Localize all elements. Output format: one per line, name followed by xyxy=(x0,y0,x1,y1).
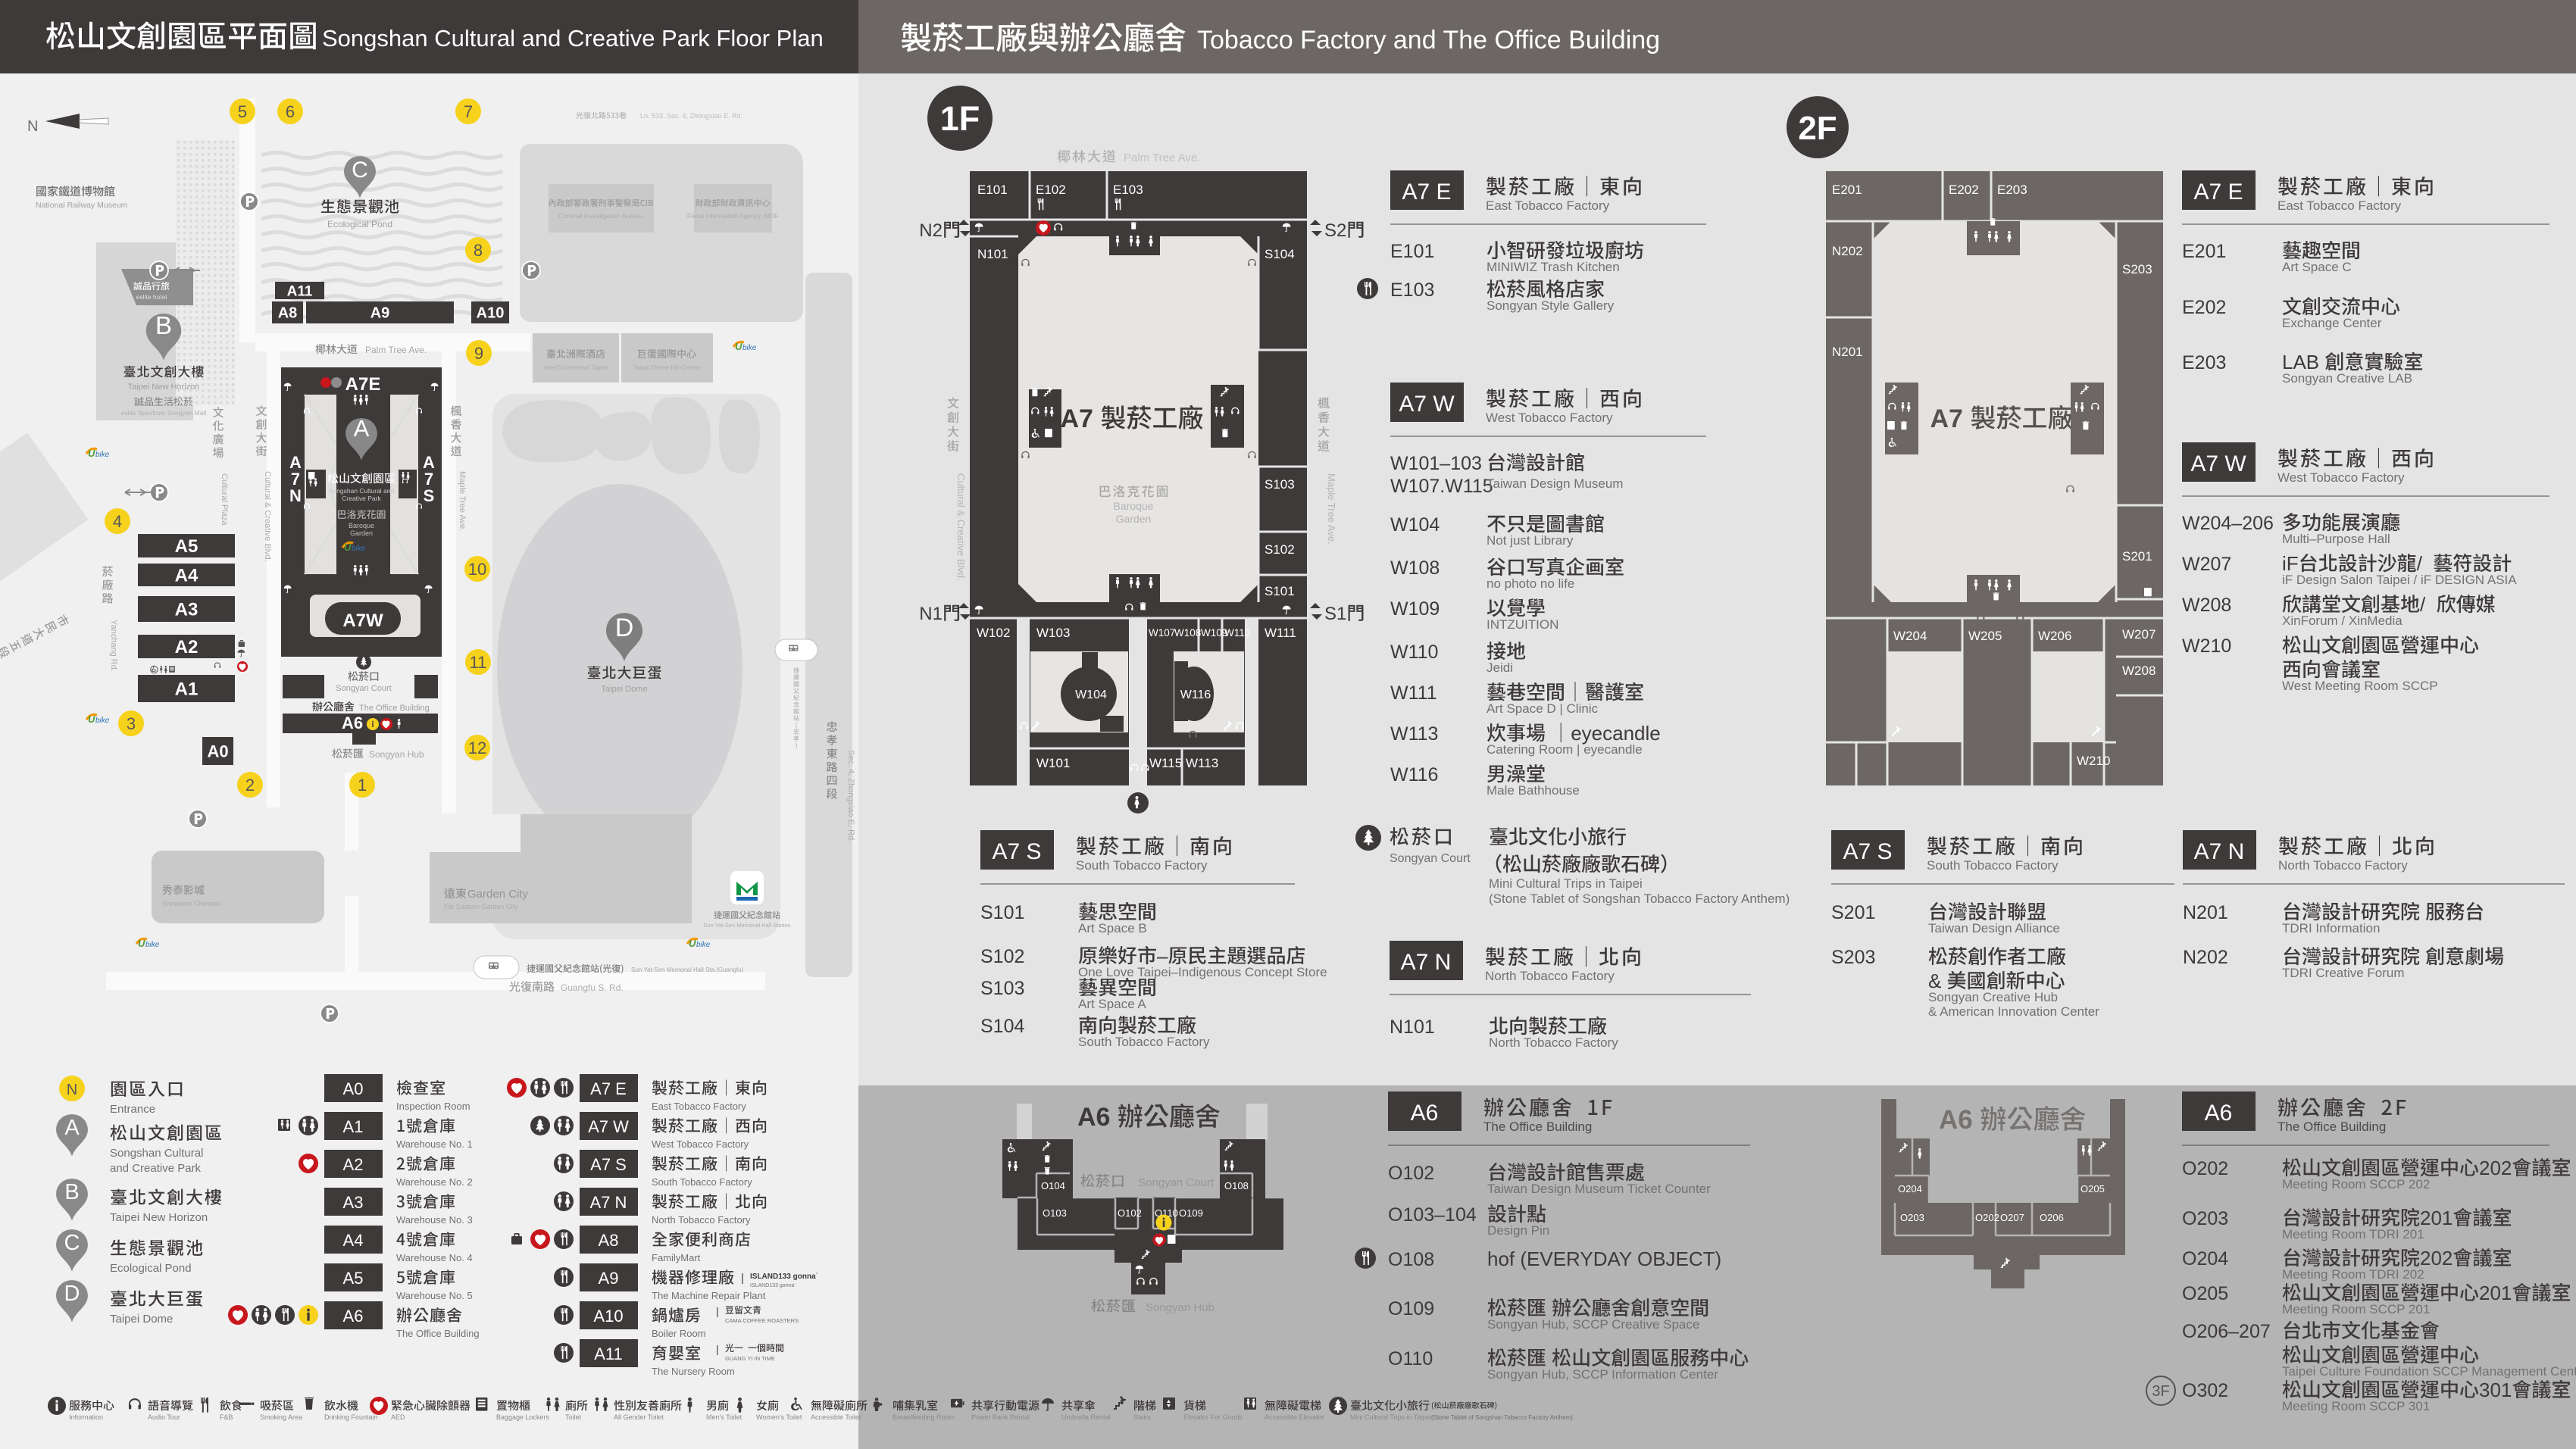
svg-text:A10: A10 xyxy=(477,305,505,322)
svg-text:N1: N1 xyxy=(919,604,943,624)
svg-text:Sec. 4, Zhongxiao E. Rd.: Sec. 4, Zhongxiao E. Rd. xyxy=(846,750,855,842)
svg-text:XinForum / XinMedia: XinForum / XinMedia xyxy=(2282,614,2402,628)
svg-text:6: 6 xyxy=(286,102,295,121)
svg-text:Fiscal Information Agency, MOF: Fiscal Information Agency, MOF xyxy=(687,212,778,220)
svg-text:Ecological Pond: Ecological Pond xyxy=(110,1262,192,1275)
svg-text:Accessible Toilet: Accessible Toilet xyxy=(811,1413,861,1421)
svg-text:A7W: A7W xyxy=(342,611,383,631)
svg-text:CAMA COFFEE ROASTERS: CAMA COFFEE ROASTERS xyxy=(725,1317,799,1324)
svg-text:iF: iF xyxy=(2282,552,2299,575)
svg-text:Exchange Center: Exchange Center xyxy=(2282,316,2382,330)
svg-text:W104: W104 xyxy=(1390,514,1440,536)
svg-text:E202: E202 xyxy=(1949,183,1979,197)
svg-text:W110: W110 xyxy=(1390,642,1438,663)
svg-text:A7: A7 xyxy=(1061,404,1093,433)
svg-text:Taiwan Design Alliance: Taiwan Design Alliance xyxy=(1928,921,2060,935)
svg-text:bike: bike xyxy=(352,545,366,553)
svg-text:All Gender Toilet: All Gender Toilet xyxy=(614,1413,664,1421)
svg-text:10: 10 xyxy=(468,560,486,579)
svg-text:S101: S101 xyxy=(980,902,1024,923)
svg-text:A7 W: A7 W xyxy=(588,1117,629,1136)
svg-text:N202: N202 xyxy=(2183,947,2228,968)
svg-text:1: 1 xyxy=(358,776,367,795)
svg-text:Songshan Cultural and: Songshan Cultural and xyxy=(329,487,395,495)
svg-text:Criminal Investigation Bureau: Criminal Investigation Bureau xyxy=(558,212,642,220)
svg-text:Art Space B: Art Space B xyxy=(1078,921,1147,935)
svg-text:South Tobacco Factory: South Tobacco Factory xyxy=(652,1176,752,1188)
svg-text:East Tobacco Factory: East Tobacco Factory xyxy=(2277,198,2402,213)
svg-text:Cultural Plaza: Cultural Plaza xyxy=(220,473,229,526)
svg-text:S1: S1 xyxy=(1324,604,1346,624)
svg-text:S201: S201 xyxy=(2122,549,2152,564)
svg-text:O108: O108 xyxy=(1388,1249,1434,1270)
svg-text:bike: bike xyxy=(145,941,160,949)
svg-text:A: A xyxy=(354,415,370,442)
svg-text:N: N xyxy=(27,118,38,135)
svg-text:A7 N: A7 N xyxy=(590,1193,627,1212)
svg-text:Taiwan Design Museum: Taiwan Design Museum xyxy=(1487,476,1623,491)
svg-text:Baroque: Baroque xyxy=(1114,500,1154,512)
svg-text:Taipei New Horizon: Taipei New Horizon xyxy=(110,1211,208,1224)
svg-text:S101: S101 xyxy=(1265,584,1295,598)
svg-text:Songyan Hub, SCCP Creative Spa: Songyan Hub, SCCP Creative Space xyxy=(1487,1317,1699,1332)
svg-text:W101: W101 xyxy=(1036,756,1070,770)
svg-text:Songyan Hub: Songyan Hub xyxy=(1146,1301,1215,1314)
svg-text:N201: N201 xyxy=(1832,345,1863,359)
svg-text:Taipei Dome Intl Center: Taipei Dome Intl Center xyxy=(633,364,701,371)
svg-text:S2: S2 xyxy=(1324,220,1346,241)
svg-text:N202: N202 xyxy=(1832,244,1863,258)
svg-text:O205: O205 xyxy=(2182,1283,2228,1304)
svg-text:Umbrella Rental: Umbrella Rental xyxy=(1061,1413,1111,1421)
svg-text:South Tobacco Factory: South Tobacco Factory xyxy=(1076,858,1208,873)
svg-text:Taipei New Horizon: Taipei New Horizon xyxy=(128,383,200,392)
svg-text:eslite hotel: eslite hotel xyxy=(136,293,167,301)
svg-text:Male Bathhouse: Male Bathhouse xyxy=(1487,783,1580,798)
svg-text:Inspection Room: Inspection Room xyxy=(396,1101,470,1112)
svg-text:Not just Library: Not just Library xyxy=(1487,533,1574,548)
svg-text:O102: O102 xyxy=(1118,1207,1142,1219)
svg-text:N: N xyxy=(67,1082,77,1098)
svg-text:Ecological Pond: Ecological Pond xyxy=(327,219,392,230)
svg-text:MINIWIZ Trash Kitchen: MINIWIZ Trash Kitchen xyxy=(1487,260,1620,274)
svg-text:|: | xyxy=(716,1305,719,1317)
svg-text:B: B xyxy=(155,311,172,339)
svg-text:F&B: F&B xyxy=(220,1413,233,1421)
svg-text:GUANG YI IN TIME: GUANG YI IN TIME xyxy=(725,1355,775,1362)
svg-text:Baggage Lockers: Baggage Lockers xyxy=(496,1413,550,1421)
svg-text:bike: bike xyxy=(696,941,711,949)
svg-text:A1: A1 xyxy=(175,679,199,700)
svg-text:W206: W206 xyxy=(2038,629,2071,643)
svg-text:–: – xyxy=(1157,945,1168,967)
svg-text:South Tobacco Factory: South Tobacco Factory xyxy=(1927,858,2059,873)
svg-text:The Office Building: The Office Building xyxy=(2277,1120,2386,1134)
svg-text:East Tobacco Factory: East Tobacco Factory xyxy=(652,1101,746,1112)
svg-text:bike: bike xyxy=(742,344,757,352)
svg-text:West Meeting Room SCCP: West Meeting Room SCCP xyxy=(2282,679,2438,693)
svg-text:A9: A9 xyxy=(599,1269,619,1288)
svg-text:N2: N2 xyxy=(919,220,943,241)
svg-text:Jeidi: Jeidi xyxy=(1487,660,1513,675)
svg-text:D: D xyxy=(64,1282,80,1306)
svg-text:W102: W102 xyxy=(977,626,1010,640)
svg-text:O202: O202 xyxy=(2182,1158,2228,1179)
svg-text:Drinking Fountain: Drinking Fountain xyxy=(324,1413,378,1421)
svg-text:A11: A11 xyxy=(287,283,313,299)
svg-text:O103: O103 xyxy=(1043,1207,1067,1219)
svg-text:hof (EVERYDAY OBJECT): hof (EVERYDAY OBJECT) xyxy=(1487,1248,1721,1270)
svg-text:A4: A4 xyxy=(175,566,199,586)
svg-text:ISLAND133 gonna˙: ISLAND133 gonna˙ xyxy=(750,1273,818,1281)
svg-text:A6: A6 xyxy=(342,714,363,732)
svg-text:N101: N101 xyxy=(1390,1016,1435,1038)
svg-text:INTZUITION: INTZUITION xyxy=(1487,617,1558,632)
svg-text:W208: W208 xyxy=(2182,595,2231,616)
svg-text:Songyan Court: Songyan Court xyxy=(1390,852,1471,865)
svg-text:Songshan Cultural and Creative: Songshan Cultural and Creative Park Floo… xyxy=(322,25,824,52)
svg-text:The Office Building: The Office Building xyxy=(359,704,430,713)
svg-text:W116: W116 xyxy=(1390,764,1438,785)
svg-text:S201: S201 xyxy=(1831,902,1875,923)
svg-text:O302: O302 xyxy=(2182,1380,2228,1401)
svg-text:/: / xyxy=(2417,552,2423,575)
svg-text:W116: W116 xyxy=(1180,689,1211,701)
svg-text:Ln. 533, Sec. 4, Zhongxiao E.: Ln. 533, Sec. 4, Zhongxiao E. Rd. xyxy=(640,112,742,120)
svg-text:Audio Tour: Audio Tour xyxy=(148,1413,180,1421)
svg-text:S: S xyxy=(424,486,435,505)
svg-text:A0: A0 xyxy=(207,742,228,760)
svg-text:W108: W108 xyxy=(1390,557,1440,579)
svg-text:Songyan Hub: Songyan Hub xyxy=(369,749,424,760)
svg-text:Art Space C: Art Space C xyxy=(2282,260,2352,274)
svg-text:Songyan Hub, SCCP Information: Songyan Hub, SCCP Information Center xyxy=(1487,1367,1718,1382)
svg-text:Cultural & Creative Blvd.: Cultural & Creative Blvd. xyxy=(955,473,967,581)
svg-text:Boiler Room: Boiler Room xyxy=(652,1328,706,1339)
svg-text:North Tobacco Factory: North Tobacco Factory xyxy=(1485,969,1615,983)
svg-text:E103: E103 xyxy=(1113,183,1143,197)
svg-text:A7 W: A7 W xyxy=(1399,392,1455,417)
svg-text:A9: A9 xyxy=(370,305,390,322)
svg-text:8: 8 xyxy=(474,241,483,260)
svg-text:Far Eastern Garden City: Far Eastern Garden City xyxy=(444,903,518,910)
svg-text:A6: A6 xyxy=(343,1307,364,1326)
svg-text:S104: S104 xyxy=(980,1016,1024,1037)
svg-text:U: U xyxy=(138,938,145,949)
svg-text:W207: W207 xyxy=(2122,627,2156,642)
svg-text:Entrance: Entrance xyxy=(110,1103,155,1116)
svg-text:Power Bank Rental: Power Bank Rental xyxy=(971,1413,1030,1421)
svg-text:3F: 3F xyxy=(2152,1383,2169,1400)
svg-text:One Love Taipei–Indigenous Con: One Love Taipei–Indigenous Concept Store xyxy=(1078,965,1327,979)
svg-text:O202: O202 xyxy=(1975,1212,1999,1223)
svg-text:E201: E201 xyxy=(2182,241,2226,262)
svg-text:2F: 2F xyxy=(1798,110,1837,147)
svg-text:TDRI Information: TDRI Information xyxy=(2282,921,2380,935)
svg-text:W107: W107 xyxy=(1149,627,1175,639)
svg-text:Mini Cultural Trips in Taipei: Mini Cultural Trips in Taipei xyxy=(1489,876,1643,891)
svg-text:Showtime Cinemas: Showtime Cinemas xyxy=(162,900,221,907)
svg-text:Garden: Garden xyxy=(1116,513,1152,525)
svg-text:InterContinental Taipei: InterContinental Taipei xyxy=(544,364,608,371)
svg-text:9: 9 xyxy=(474,344,483,363)
svg-text:The Office Building: The Office Building xyxy=(1483,1120,1592,1134)
svg-text:Toilet: Toilet xyxy=(565,1413,582,1421)
svg-text:A7 S: A7 S xyxy=(1843,839,1892,864)
svg-text:W210: W210 xyxy=(2077,754,2110,768)
svg-text:W204: W204 xyxy=(1893,629,1927,643)
svg-text:A0: A0 xyxy=(343,1079,364,1098)
svg-text:1F: 1F xyxy=(940,99,980,138)
svg-text:O109: O109 xyxy=(1388,1298,1434,1319)
svg-text:N201: N201 xyxy=(2183,902,2228,923)
svg-text:A7 S: A7 S xyxy=(992,839,1041,864)
svg-text:Art Space D | Clinic: Art Space D | Clinic xyxy=(1487,701,1599,716)
svg-text:Garden City: Garden City xyxy=(467,888,529,901)
svg-text:Taipei Dome: Taipei Dome xyxy=(601,685,647,694)
svg-text:(Stone Tablet of Songshan Toba: (Stone Tablet of Songshan Tobacco Factor… xyxy=(1489,892,1790,906)
svg-text:Songyan Style Gallery: Songyan Style Gallery xyxy=(1487,298,1615,313)
svg-text:Taipei Culture Foundation SCCP: Taipei Culture Foundation SCCP Managemen… xyxy=(2282,1364,2576,1379)
svg-text:Garden: Garden xyxy=(350,529,373,537)
svg-text:Songyan Court: Songyan Court xyxy=(1138,1176,1215,1189)
svg-text:LAB: LAB xyxy=(2282,351,2319,373)
svg-text:Warehouse No. 1: Warehouse No. 1 xyxy=(396,1138,473,1150)
svg-text:B: B xyxy=(64,1180,79,1204)
svg-text:201: 201 xyxy=(2479,1282,2512,1304)
svg-text:North Tobacco Factory: North Tobacco Factory xyxy=(652,1214,751,1226)
svg-text:Baroque: Baroque xyxy=(349,522,374,529)
svg-text:E202: E202 xyxy=(2182,297,2226,318)
svg-text:Guangfu S. Rd.: Guangfu S. Rd. xyxy=(561,982,624,993)
svg-text:O102: O102 xyxy=(1388,1163,1434,1184)
svg-text:O205: O205 xyxy=(2080,1183,2105,1194)
svg-text:A7E: A7E xyxy=(345,374,381,395)
svg-text:C: C xyxy=(352,158,368,183)
svg-text:East Tobacco Factory: East Tobacco Factory xyxy=(1486,198,1610,213)
svg-text:Accessible Elevator: Accessible Elevator xyxy=(1265,1413,1324,1421)
svg-text:U: U xyxy=(689,938,696,949)
svg-text:A5: A5 xyxy=(343,1269,364,1288)
svg-text:TDRI Creative Forum: TDRI Creative Forum xyxy=(2282,966,2405,980)
svg-text:A6: A6 xyxy=(1077,1103,1110,1132)
svg-text:Warehouse No. 3: Warehouse No. 3 xyxy=(396,1214,473,1226)
svg-text:E102: E102 xyxy=(1036,183,1066,197)
svg-text:D: D xyxy=(615,614,634,642)
svg-text:W115: W115 xyxy=(1149,756,1182,770)
svg-text:Meeting Room SCCP 202: Meeting Room SCCP 202 xyxy=(2282,1177,2430,1191)
svg-text:U: U xyxy=(344,542,352,553)
svg-text:Yanchang Rd.: Yanchang Rd. xyxy=(109,620,118,672)
svg-text:A4: A4 xyxy=(343,1231,364,1250)
svg-text:A7 W: A7 W xyxy=(2190,451,2246,476)
svg-text:S103: S103 xyxy=(1265,477,1295,492)
svg-text:W111: W111 xyxy=(1390,682,1437,704)
svg-text:/: / xyxy=(2420,593,2426,616)
svg-text:Maple Tree Ave.: Maple Tree Ave. xyxy=(1326,473,1337,545)
svg-text:A3: A3 xyxy=(343,1193,364,1212)
svg-text:A7 E: A7 E xyxy=(590,1079,627,1098)
svg-text:Meeting Room SCCP 301: Meeting Room SCCP 301 xyxy=(2282,1399,2430,1413)
svg-text:Tobacco Factory and The Office: Tobacco Factory and The Office Building xyxy=(1197,26,1660,55)
svg-text:Meeting Room TDRI 202: Meeting Room TDRI 202 xyxy=(2282,1267,2424,1282)
svg-text:O110: O110 xyxy=(1388,1348,1433,1369)
svg-text:A7: A7 xyxy=(1930,404,1963,433)
svg-text:Palm Tree Ave.: Palm Tree Ave. xyxy=(1124,151,1200,164)
svg-text:4: 4 xyxy=(113,512,122,531)
svg-text:Information: Information xyxy=(69,1413,103,1421)
svg-text:Women's Toilet: Women's Toilet xyxy=(756,1413,802,1421)
svg-text:A8: A8 xyxy=(599,1231,619,1250)
svg-text:W113: W113 xyxy=(1186,756,1218,770)
svg-text:(Stone Tablet of Songshan Toba: (Stone Tablet of Songshan Tobacco Factor… xyxy=(1431,1414,1573,1421)
svg-text:no photo no life: no photo no life xyxy=(1487,576,1574,591)
svg-text:S102: S102 xyxy=(980,946,1024,967)
svg-text:South Tobacco Factory: South Tobacco Factory xyxy=(1078,1035,1210,1049)
svg-text:Songshan Cultural: Songshan Cultural xyxy=(110,1147,203,1160)
svg-text:O203: O203 xyxy=(2182,1208,2228,1229)
svg-text:eyecandle: eyecandle xyxy=(1571,722,1661,745)
svg-text:W108: W108 xyxy=(1174,627,1201,639)
svg-text:A11: A11 xyxy=(594,1344,623,1363)
svg-text:A3: A3 xyxy=(175,600,199,620)
svg-text:W101–103: W101–103 xyxy=(1390,453,1482,474)
svg-text:5: 5 xyxy=(238,102,247,121)
svg-text:iF Design Salon Taipei / iF DE: iF Design Salon Taipei / iF DESIGN ASIA xyxy=(2282,573,2517,587)
svg-text:S103: S103 xyxy=(980,978,1024,999)
svg-text:W104: W104 xyxy=(1075,689,1107,701)
svg-text:E201: E201 xyxy=(1832,183,1862,197)
svg-text:A6: A6 xyxy=(1411,1101,1439,1126)
svg-text:Taipei Dome: Taipei Dome xyxy=(110,1313,173,1326)
svg-text:Mini Cultural Trips in Taipei: Mini Cultural Trips in Taipei xyxy=(1350,1413,1431,1421)
svg-text:S203: S203 xyxy=(2122,262,2152,276)
svg-text:Cultural & Creative Blvd.: Cultural & Creative Blvd. xyxy=(263,471,272,562)
svg-text:A7 E: A7 E xyxy=(1402,180,1451,205)
svg-text:Songyan Creative Hub: Songyan Creative Hub xyxy=(1928,990,2058,1004)
svg-text:E101: E101 xyxy=(1390,241,1434,262)
svg-text:O204: O204 xyxy=(2182,1248,2228,1269)
svg-text:3: 3 xyxy=(127,714,136,733)
svg-text:Warehouse No. 4: Warehouse No. 4 xyxy=(396,1252,473,1263)
svg-text:ISLAND133 gonna': ISLAND133 gonna' xyxy=(750,1283,796,1288)
svg-text:Sun Yat-Sen Memorial Hall Stat: Sun Yat-Sen Memorial Hall Station xyxy=(703,922,790,929)
svg-text:301: 301 xyxy=(2479,1379,2512,1401)
svg-text:W204–206: W204–206 xyxy=(2182,513,2274,534)
svg-text:W109: W109 xyxy=(1201,627,1227,639)
svg-text:Breastfeeding Room: Breastfeeding Room xyxy=(893,1413,955,1421)
svg-text:202: 202 xyxy=(2479,1157,2512,1179)
svg-text:and Creative Park: and Creative Park xyxy=(110,1162,202,1175)
svg-text:Multi–Purpose Hall: Multi–Purpose Hall xyxy=(2282,532,2390,546)
svg-text:S203: S203 xyxy=(1831,947,1875,968)
svg-text:Catering Room | eyecandle: Catering Room | eyecandle xyxy=(1487,742,1643,757)
svg-text:U: U xyxy=(88,448,95,459)
svg-text:North Tobacco Factory: North Tobacco Factory xyxy=(2278,858,2408,873)
svg-text:Meeting Room TDRI 201: Meeting Room TDRI 201 xyxy=(2282,1227,2424,1241)
svg-text:National Railway Museum: National Railway Museum xyxy=(36,201,128,210)
svg-text:202: 202 xyxy=(2420,1247,2453,1269)
svg-text:W210: W210 xyxy=(2182,635,2231,657)
svg-text:Warehouse No. 2: Warehouse No. 2 xyxy=(396,1176,473,1188)
svg-text:A7 N: A7 N xyxy=(1401,950,1452,975)
svg-text:E203: E203 xyxy=(2182,352,2226,373)
svg-text:A1: A1 xyxy=(343,1117,364,1136)
svg-text:Songyan Creative LAB: Songyan Creative LAB xyxy=(2282,371,2412,386)
svg-text:U: U xyxy=(88,714,95,725)
svg-text:bike: bike xyxy=(95,451,110,459)
svg-text:O109: O109 xyxy=(1179,1207,1203,1219)
svg-text:N101: N101 xyxy=(977,247,1008,261)
svg-text:W207: W207 xyxy=(2182,554,2231,575)
svg-text:A8: A8 xyxy=(278,305,298,322)
svg-text:W113: W113 xyxy=(1390,723,1438,745)
svg-text:E101: E101 xyxy=(977,183,1008,197)
svg-text:Maple Tree Ave.: Maple Tree Ave. xyxy=(458,471,467,531)
svg-text:North Tobacco Factory: North Tobacco Factory xyxy=(1489,1035,1618,1050)
svg-text:O204: O204 xyxy=(1898,1183,1922,1194)
svg-text:W208: W208 xyxy=(2122,664,2156,678)
svg-text:Warehouse No. 5: Warehouse No. 5 xyxy=(396,1290,473,1301)
svg-text:&: & xyxy=(1928,970,1941,992)
svg-text:U: U xyxy=(735,341,742,352)
svg-text:7: 7 xyxy=(464,102,473,121)
svg-text:C: C xyxy=(64,1231,80,1255)
svg-text:A2: A2 xyxy=(343,1155,364,1174)
svg-text:A6: A6 xyxy=(2205,1101,2233,1126)
svg-text:bike: bike xyxy=(95,717,110,725)
svg-text:A: A xyxy=(64,1116,80,1140)
svg-text:& American Innovation Center: & American Innovation Center xyxy=(1928,1004,2099,1019)
svg-text:Songyan Court: Songyan Court xyxy=(336,684,391,693)
svg-text:A7 N: A7 N xyxy=(2194,839,2245,864)
svg-text:E203: E203 xyxy=(1997,183,2027,197)
svg-text:W111: W111 xyxy=(1265,626,1296,640)
svg-text:W109: W109 xyxy=(1390,598,1440,620)
svg-text:A6: A6 xyxy=(1939,1105,1973,1135)
svg-text:O203: O203 xyxy=(1900,1212,1924,1223)
svg-text:Stairs: Stairs xyxy=(1133,1413,1152,1421)
svg-text:A7 S: A7 S xyxy=(590,1155,627,1174)
svg-text:O206: O206 xyxy=(2040,1212,2064,1223)
svg-text:The Nursery Room: The Nursery Room xyxy=(652,1366,735,1377)
svg-text:O206–207: O206–207 xyxy=(2182,1321,2271,1342)
svg-text:Palm Tree Ave.: Palm Tree Ave. xyxy=(365,345,427,355)
svg-text:West Tobacco Factory: West Tobacco Factory xyxy=(1486,411,1613,425)
svg-text:Taiwan Design Museum Ticket Co: Taiwan Design Museum Ticket Counter xyxy=(1487,1182,1711,1196)
svg-text:W107.W115: W107.W115 xyxy=(1390,476,1493,497)
svg-text:W110: W110 xyxy=(1224,627,1250,639)
svg-text:O103–104: O103–104 xyxy=(1388,1204,1477,1226)
svg-text:N: N xyxy=(289,486,302,505)
svg-text:A7 E: A7 E xyxy=(2193,180,2243,205)
svg-text:A5: A5 xyxy=(175,536,199,557)
svg-text:E103: E103 xyxy=(1390,279,1434,301)
svg-text:eslite Spectrum Songyan Mall: eslite Spectrum Songyan Mall xyxy=(121,409,207,417)
svg-text:|: | xyxy=(716,1343,719,1355)
svg-text:W103: W103 xyxy=(1036,626,1070,640)
svg-text:11: 11 xyxy=(470,653,487,672)
svg-text:|: | xyxy=(741,1272,744,1285)
svg-text:A2: A2 xyxy=(175,637,199,657)
svg-text:Meeting Room SCCP 201: Meeting Room SCCP 201 xyxy=(2282,1302,2430,1316)
svg-text:2: 2 xyxy=(245,776,255,795)
svg-text:12: 12 xyxy=(468,739,486,757)
svg-text:Creative Park: Creative Park xyxy=(342,495,381,502)
svg-text:West Tobacco Factory: West Tobacco Factory xyxy=(652,1138,749,1150)
svg-text:AED: AED xyxy=(391,1413,405,1421)
svg-text:S102: S102 xyxy=(1265,542,1295,557)
